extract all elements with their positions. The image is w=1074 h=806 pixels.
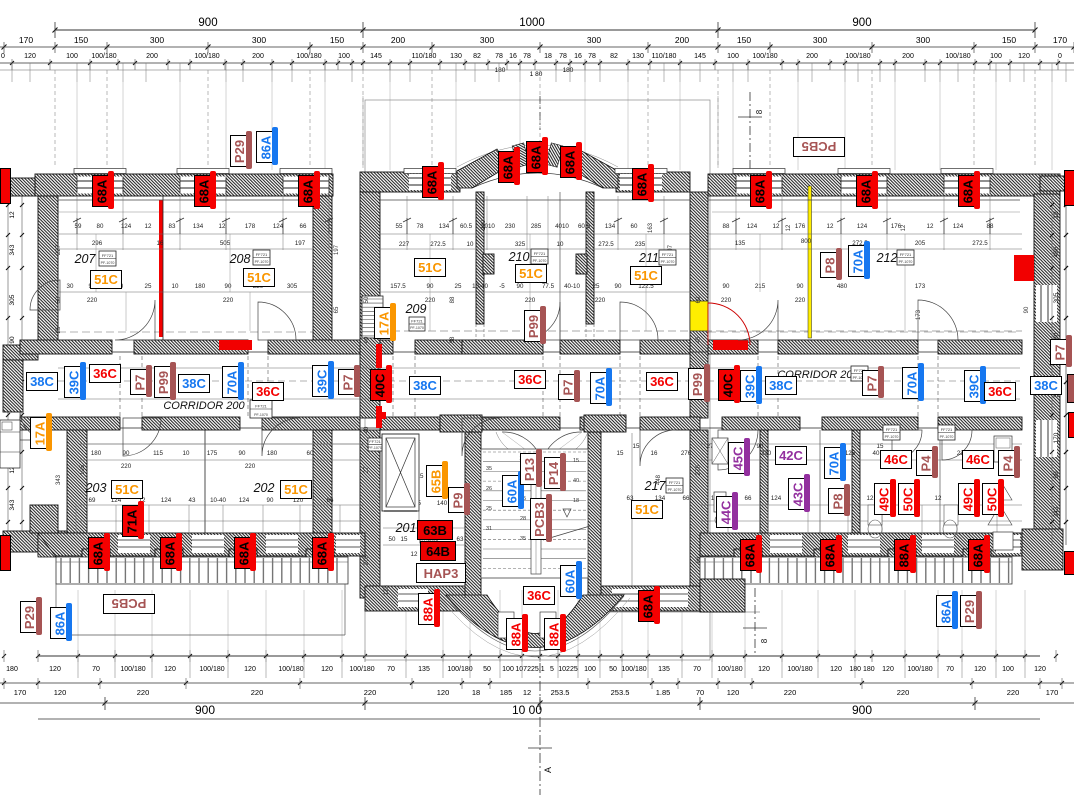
svg-text:220: 220 (595, 297, 606, 304)
svg-text:PF-1070: PF-1070 (254, 413, 268, 417)
svg-text:210: 210 (508, 250, 530, 264)
svg-text:0: 0 (1, 53, 5, 60)
svg-text:900: 900 (852, 703, 872, 717)
svg-text:120: 120 (758, 666, 770, 673)
svg-text:300: 300 (480, 35, 494, 45)
svg-text:PF-1070: PF-1070 (101, 261, 115, 265)
svg-text:115: 115 (153, 450, 163, 457)
svg-text:12: 12 (867, 495, 874, 502)
svg-text:300: 300 (916, 35, 930, 45)
svg-text:59: 59 (75, 223, 82, 230)
svg-text:170: 170 (1053, 35, 1067, 45)
svg-text:90: 90 (615, 283, 622, 290)
svg-text:145: 145 (370, 53, 382, 60)
svg-text:220: 220 (223, 297, 234, 304)
svg-text:900: 900 (198, 17, 217, 29)
svg-text:205: 205 (915, 240, 926, 247)
svg-text:90: 90 (267, 497, 274, 504)
svg-text:212: 212 (876, 251, 898, 265)
svg-text:220: 220 (897, 688, 910, 697)
svg-text:FF721: FF721 (662, 252, 674, 257)
svg-text:180: 180 (195, 283, 206, 290)
svg-text:12: 12 (1053, 211, 1060, 219)
svg-text:124: 124 (273, 223, 284, 230)
svg-text:90: 90 (797, 283, 804, 290)
svg-text:343: 343 (1053, 506, 1060, 517)
svg-text:305: 305 (1053, 292, 1060, 303)
svg-text:100/180: 100/180 (91, 53, 116, 60)
svg-text:220: 220 (761, 450, 772, 457)
svg-text:12: 12 (523, 688, 531, 697)
svg-text:FF721: FF721 (886, 427, 898, 432)
svg-text:120: 120 (54, 688, 67, 697)
svg-text:8: 8 (755, 109, 764, 114)
svg-text:100: 100 (727, 53, 739, 60)
svg-text:220: 220 (121, 463, 132, 470)
svg-text:66: 66 (696, 556, 702, 563)
svg-text:305: 305 (287, 283, 298, 290)
svg-text:69: 69 (89, 497, 96, 504)
svg-text:178: 178 (245, 223, 256, 230)
svg-text:77.5: 77.5 (542, 283, 555, 290)
svg-text:16: 16 (651, 450, 658, 457)
svg-text:170: 170 (1046, 688, 1059, 697)
svg-text:253.5: 253.5 (551, 688, 570, 697)
svg-text:120: 120 (830, 666, 842, 673)
svg-text:100/180: 100/180 (787, 666, 812, 673)
svg-text:PF-1070: PF-1070 (940, 435, 954, 439)
svg-text:1.85: 1.85 (656, 688, 671, 697)
svg-text:55: 55 (396, 223, 403, 230)
svg-text:88: 88 (450, 296, 456, 303)
svg-text:145: 145 (694, 53, 706, 60)
svg-text:220: 220 (251, 688, 264, 697)
svg-text:100/180: 100/180 (907, 666, 932, 673)
svg-text:180: 180 (6, 666, 18, 673)
svg-text:100/180: 100/180 (447, 666, 472, 673)
svg-text:124: 124 (121, 223, 132, 230)
svg-text:15: 15 (573, 458, 579, 464)
svg-text:180 180: 180 180 (849, 666, 874, 673)
svg-text:120: 120 (437, 688, 450, 697)
svg-text:276: 276 (681, 450, 692, 457)
svg-text:480: 480 (837, 283, 848, 290)
svg-text:185: 185 (500, 688, 513, 697)
svg-text:35: 35 (520, 536, 526, 542)
svg-text:100/180: 100/180 (296, 53, 321, 60)
svg-text:18: 18 (573, 498, 579, 504)
svg-text:28: 28 (520, 516, 526, 522)
svg-text:800: 800 (801, 238, 812, 245)
svg-text:30: 30 (67, 283, 74, 290)
svg-text:170: 170 (19, 35, 33, 45)
svg-text:FF721: FF721 (534, 251, 546, 256)
svg-text:60: 60 (307, 450, 314, 457)
svg-text:78: 78 (559, 53, 567, 60)
svg-text:FF721: FF721 (941, 427, 953, 432)
svg-text:300: 300 (813, 35, 827, 45)
svg-text:900: 900 (195, 703, 215, 717)
svg-text:124: 124 (771, 495, 782, 502)
svg-text:82: 82 (473, 53, 481, 60)
svg-text:PF-1070: PF-1070 (533, 259, 547, 263)
svg-text:43: 43 (189, 497, 196, 504)
svg-text:78: 78 (588, 53, 596, 60)
svg-text:220: 220 (721, 297, 732, 304)
svg-text:12: 12 (411, 551, 418, 558)
svg-text:180: 180 (91, 450, 102, 457)
svg-text:40: 40 (364, 426, 370, 433)
svg-text:4010: 4010 (555, 223, 569, 230)
svg-text:135: 135 (658, 666, 670, 673)
svg-text:135: 135 (735, 240, 746, 247)
svg-text:90: 90 (225, 283, 232, 290)
svg-text:272.5: 272.5 (972, 240, 988, 247)
svg-text:FF721: FF721 (102, 253, 114, 258)
svg-text:170: 170 (1053, 432, 1060, 443)
svg-text:343: 343 (56, 474, 62, 485)
svg-text:200: 200 (252, 53, 264, 60)
svg-text:60: 60 (696, 296, 702, 303)
svg-text:FF721: FF721 (369, 439, 381, 444)
svg-text:40: 40 (873, 450, 880, 457)
svg-text:35: 35 (486, 466, 492, 472)
svg-text:0: 0 (1058, 53, 1062, 60)
svg-text:211: 211 (638, 251, 659, 265)
svg-text:120: 120 (24, 53, 36, 60)
svg-text:253.5: 253.5 (611, 688, 630, 697)
svg-text:FF721: FF721 (411, 319, 423, 324)
svg-text:272.5: 272.5 (430, 241, 446, 248)
svg-text:12: 12 (901, 224, 907, 231)
svg-text:220: 220 (137, 688, 150, 697)
svg-text:343: 343 (9, 244, 16, 255)
svg-text:100/180: 100/180 (278, 666, 303, 673)
svg-text:505: 505 (220, 240, 231, 247)
svg-text:285: 285 (531, 223, 542, 230)
svg-text:120: 120 (321, 666, 333, 673)
svg-text:227: 227 (56, 244, 62, 255)
svg-text:12: 12 (827, 223, 834, 230)
svg-text:220: 220 (245, 463, 256, 470)
svg-text:120: 120 (974, 666, 986, 673)
svg-text:12: 12 (9, 211, 16, 219)
svg-text:PF-1070: PF-1070 (255, 260, 269, 264)
svg-text:157.5: 157.5 (390, 283, 406, 290)
svg-text:134: 134 (193, 223, 204, 230)
svg-text:120: 120 (49, 666, 61, 673)
svg-text:5: 5 (550, 666, 554, 673)
svg-text:PF-1070: PF-1070 (668, 488, 682, 492)
svg-text:66: 66 (683, 495, 690, 502)
svg-text:120: 120 (727, 688, 740, 697)
svg-text:300: 300 (252, 35, 266, 45)
svg-text:90: 90 (427, 283, 434, 290)
svg-text:220: 220 (1007, 688, 1020, 697)
svg-text:220: 220 (87, 297, 98, 304)
svg-text:130: 130 (632, 53, 644, 60)
svg-text:66: 66 (327, 497, 334, 504)
svg-text:173: 173 (916, 309, 922, 320)
svg-text:120: 120 (882, 666, 894, 673)
svg-text:FF721: FF721 (900, 252, 912, 257)
svg-text:200: 200 (146, 53, 158, 60)
svg-text:10225: 10225 (558, 666, 578, 673)
svg-text:207: 207 (74, 252, 97, 266)
svg-text:12: 12 (773, 223, 780, 230)
svg-text:10-40: 10-40 (472, 283, 488, 290)
svg-text:163: 163 (648, 222, 654, 233)
svg-text:25: 25 (486, 506, 492, 512)
svg-text:PF-1070: PF-1070 (368, 446, 382, 450)
svg-text:134: 134 (439, 223, 450, 230)
svg-text:134: 134 (605, 223, 616, 230)
svg-text:15: 15 (633, 443, 640, 450)
svg-text:220: 220 (795, 297, 806, 304)
svg-text:173: 173 (915, 283, 926, 290)
svg-text:10-40: 10-40 (210, 497, 226, 504)
svg-text:16: 16 (574, 53, 582, 60)
svg-text:496: 496 (1053, 246, 1060, 257)
svg-text:25: 25 (455, 283, 462, 290)
svg-text:100: 100 (990, 53, 1002, 60)
svg-text:100/180: 100/180 (945, 53, 970, 60)
svg-text:124: 124 (239, 497, 250, 504)
svg-text:235: 235 (635, 241, 646, 248)
svg-text:12: 12 (927, 223, 934, 230)
svg-text:203: 203 (364, 554, 370, 565)
svg-text:180: 180 (267, 450, 278, 457)
svg-text:197: 197 (334, 244, 340, 255)
svg-text:100/180: 100/180 (349, 666, 374, 673)
svg-text:220: 220 (364, 688, 377, 697)
svg-text:343: 343 (9, 499, 16, 510)
svg-text:25: 25 (145, 283, 152, 290)
svg-text:150: 150 (1002, 35, 1016, 45)
svg-text:40: 40 (573, 478, 579, 484)
svg-text:201: 201 (395, 521, 417, 535)
svg-text:10: 10 (467, 241, 474, 248)
svg-text:78: 78 (417, 223, 424, 230)
svg-text:12: 12 (786, 224, 792, 231)
svg-text:90: 90 (239, 450, 246, 457)
svg-text:125: 125 (845, 450, 856, 457)
svg-text:80: 80 (97, 223, 104, 230)
svg-text:100: 100 (338, 53, 350, 60)
svg-text:100/180: 100/180 (752, 53, 777, 60)
svg-text:90: 90 (723, 283, 730, 290)
svg-text:200: 200 (391, 35, 405, 45)
svg-text:83: 83 (169, 223, 176, 230)
svg-text:PF-1070: PF-1070 (899, 260, 913, 264)
svg-text:27: 27 (364, 466, 370, 473)
svg-text:124: 124 (161, 497, 172, 504)
svg-text:15: 15 (401, 536, 408, 543)
svg-text:100/180: 100/180 (120, 666, 145, 673)
svg-text:90: 90 (517, 283, 524, 290)
svg-text:110/180: 110/180 (652, 53, 677, 60)
svg-text:66: 66 (300, 223, 307, 230)
svg-text:18: 18 (544, 53, 552, 60)
svg-text:200: 200 (806, 53, 818, 60)
svg-text:40: 40 (364, 336, 370, 343)
svg-text:1000: 1000 (519, 17, 545, 29)
svg-text:272.5: 272.5 (598, 241, 614, 248)
svg-text:100: 100 (584, 666, 596, 673)
svg-text:82: 82 (610, 53, 618, 60)
svg-text:276: 276 (696, 464, 702, 475)
svg-text:50: 50 (56, 296, 62, 303)
svg-text:170: 170 (14, 688, 27, 697)
svg-text:90: 90 (9, 336, 16, 344)
svg-text:50: 50 (609, 666, 617, 673)
svg-text:100/180: 100/180 (199, 666, 224, 673)
svg-text:60.5: 60.5 (460, 223, 473, 230)
svg-text:FF721: FF721 (255, 404, 267, 409)
svg-text:900: 900 (852, 17, 871, 29)
svg-text:50: 50 (483, 666, 491, 673)
svg-text:100: 100 (1002, 666, 1014, 673)
svg-text:176: 176 (795, 223, 806, 230)
svg-text:100/180: 100/180 (717, 666, 742, 673)
svg-text:25: 25 (56, 326, 62, 333)
svg-text:197: 197 (295, 240, 306, 247)
svg-text:100/180: 100/180 (194, 53, 219, 60)
svg-text:124: 124 (953, 223, 964, 230)
svg-text:12: 12 (219, 223, 226, 230)
svg-text:50: 50 (364, 296, 370, 303)
svg-text:135: 135 (418, 666, 430, 673)
svg-text:-5: -5 (499, 283, 505, 290)
svg-text:12: 12 (935, 495, 942, 502)
svg-text:105: 105 (80, 464, 86, 475)
svg-text:45: 45 (696, 336, 702, 343)
svg-text:8: 8 (760, 638, 769, 643)
svg-text:66: 66 (745, 495, 752, 502)
svg-text:15: 15 (617, 450, 624, 457)
svg-text:175: 175 (207, 450, 218, 457)
svg-text:18: 18 (472, 688, 480, 697)
svg-text:305: 305 (9, 294, 16, 305)
svg-text:70: 70 (92, 666, 100, 673)
svg-text:200: 200 (675, 35, 689, 45)
svg-text:180: 180 (563, 67, 574, 74)
svg-text:90: 90 (1053, 471, 1060, 479)
svg-text:10: 10 (172, 283, 179, 290)
svg-text:110/180: 110/180 (412, 53, 437, 60)
svg-text:100: 100 (66, 53, 78, 60)
svg-text:60.5: 60.5 (578, 223, 591, 230)
svg-text:88: 88 (723, 223, 730, 230)
svg-text:120: 120 (244, 666, 256, 673)
svg-text:PF-1070: PF-1070 (661, 260, 675, 264)
svg-text:78: 78 (523, 53, 531, 60)
svg-text:180: 180 (495, 67, 506, 74)
svg-text:10: 10 (183, 450, 190, 457)
svg-text:124: 124 (857, 223, 868, 230)
svg-text:200: 200 (902, 53, 914, 60)
svg-text:150: 150 (737, 35, 751, 45)
svg-text:90: 90 (1024, 306, 1030, 313)
svg-text:70: 70 (387, 666, 395, 673)
svg-text:150: 150 (330, 35, 344, 45)
svg-text:230: 230 (505, 223, 516, 230)
svg-text:FF721: FF721 (669, 480, 681, 485)
svg-text:CORRIDOR 200: CORRIDOR 200 (163, 400, 245, 412)
svg-text:50: 50 (389, 536, 396, 543)
svg-text:120: 120 (1034, 666, 1046, 673)
svg-text:A: A (543, 767, 553, 773)
svg-text:16: 16 (157, 240, 164, 247)
svg-text:120: 120 (1018, 53, 1030, 60)
svg-text:70: 70 (696, 688, 704, 697)
svg-text:26: 26 (486, 486, 492, 492)
svg-text:63: 63 (457, 536, 464, 543)
svg-text:38: 38 (450, 336, 456, 343)
svg-text:215: 215 (755, 283, 766, 290)
svg-text:40-10: 40-10 (564, 283, 580, 290)
svg-text:10: 10 (557, 241, 564, 248)
svg-text:PF-1070: PF-1070 (885, 435, 899, 439)
svg-text:FF721: FF721 (256, 252, 268, 257)
svg-text:78: 78 (495, 53, 503, 60)
svg-text:208: 208 (229, 252, 251, 266)
svg-text:217: 217 (644, 479, 667, 493)
svg-text:209: 209 (405, 302, 427, 316)
svg-text:100/180: 100/180 (845, 53, 870, 60)
svg-text:220: 220 (425, 297, 436, 304)
svg-text:65: 65 (334, 306, 340, 313)
svg-text:16: 16 (509, 53, 517, 60)
svg-text:88: 88 (987, 223, 994, 230)
svg-text:PF-1070: PF-1070 (410, 326, 424, 330)
svg-text:325: 325 (515, 241, 526, 248)
svg-text:220: 220 (784, 688, 797, 697)
svg-text:124: 124 (747, 223, 758, 230)
svg-text:70: 70 (946, 666, 954, 673)
svg-text:123: 123 (384, 584, 390, 595)
svg-text:202: 202 (253, 481, 275, 495)
svg-text:230: 230 (481, 219, 487, 230)
svg-text:1 80: 1 80 (530, 71, 543, 78)
svg-text:130: 130 (450, 53, 462, 60)
svg-text:220: 220 (525, 297, 536, 304)
svg-text:100: 100 (502, 666, 514, 673)
svg-text:300: 300 (587, 35, 601, 45)
svg-text:227: 227 (399, 241, 410, 248)
svg-text:150: 150 (74, 35, 88, 45)
svg-text:25: 25 (593, 283, 600, 290)
svg-text:140: 140 (437, 500, 448, 507)
svg-text:300: 300 (150, 35, 164, 45)
svg-text:296: 296 (92, 240, 103, 247)
svg-text:120: 120 (164, 666, 176, 673)
svg-text:31: 31 (486, 526, 492, 532)
svg-text:60: 60 (631, 223, 638, 230)
svg-text:100/180: 100/180 (621, 666, 646, 673)
svg-text:203: 203 (85, 481, 107, 495)
svg-text:12: 12 (145, 223, 152, 230)
svg-text:70: 70 (693, 666, 701, 673)
